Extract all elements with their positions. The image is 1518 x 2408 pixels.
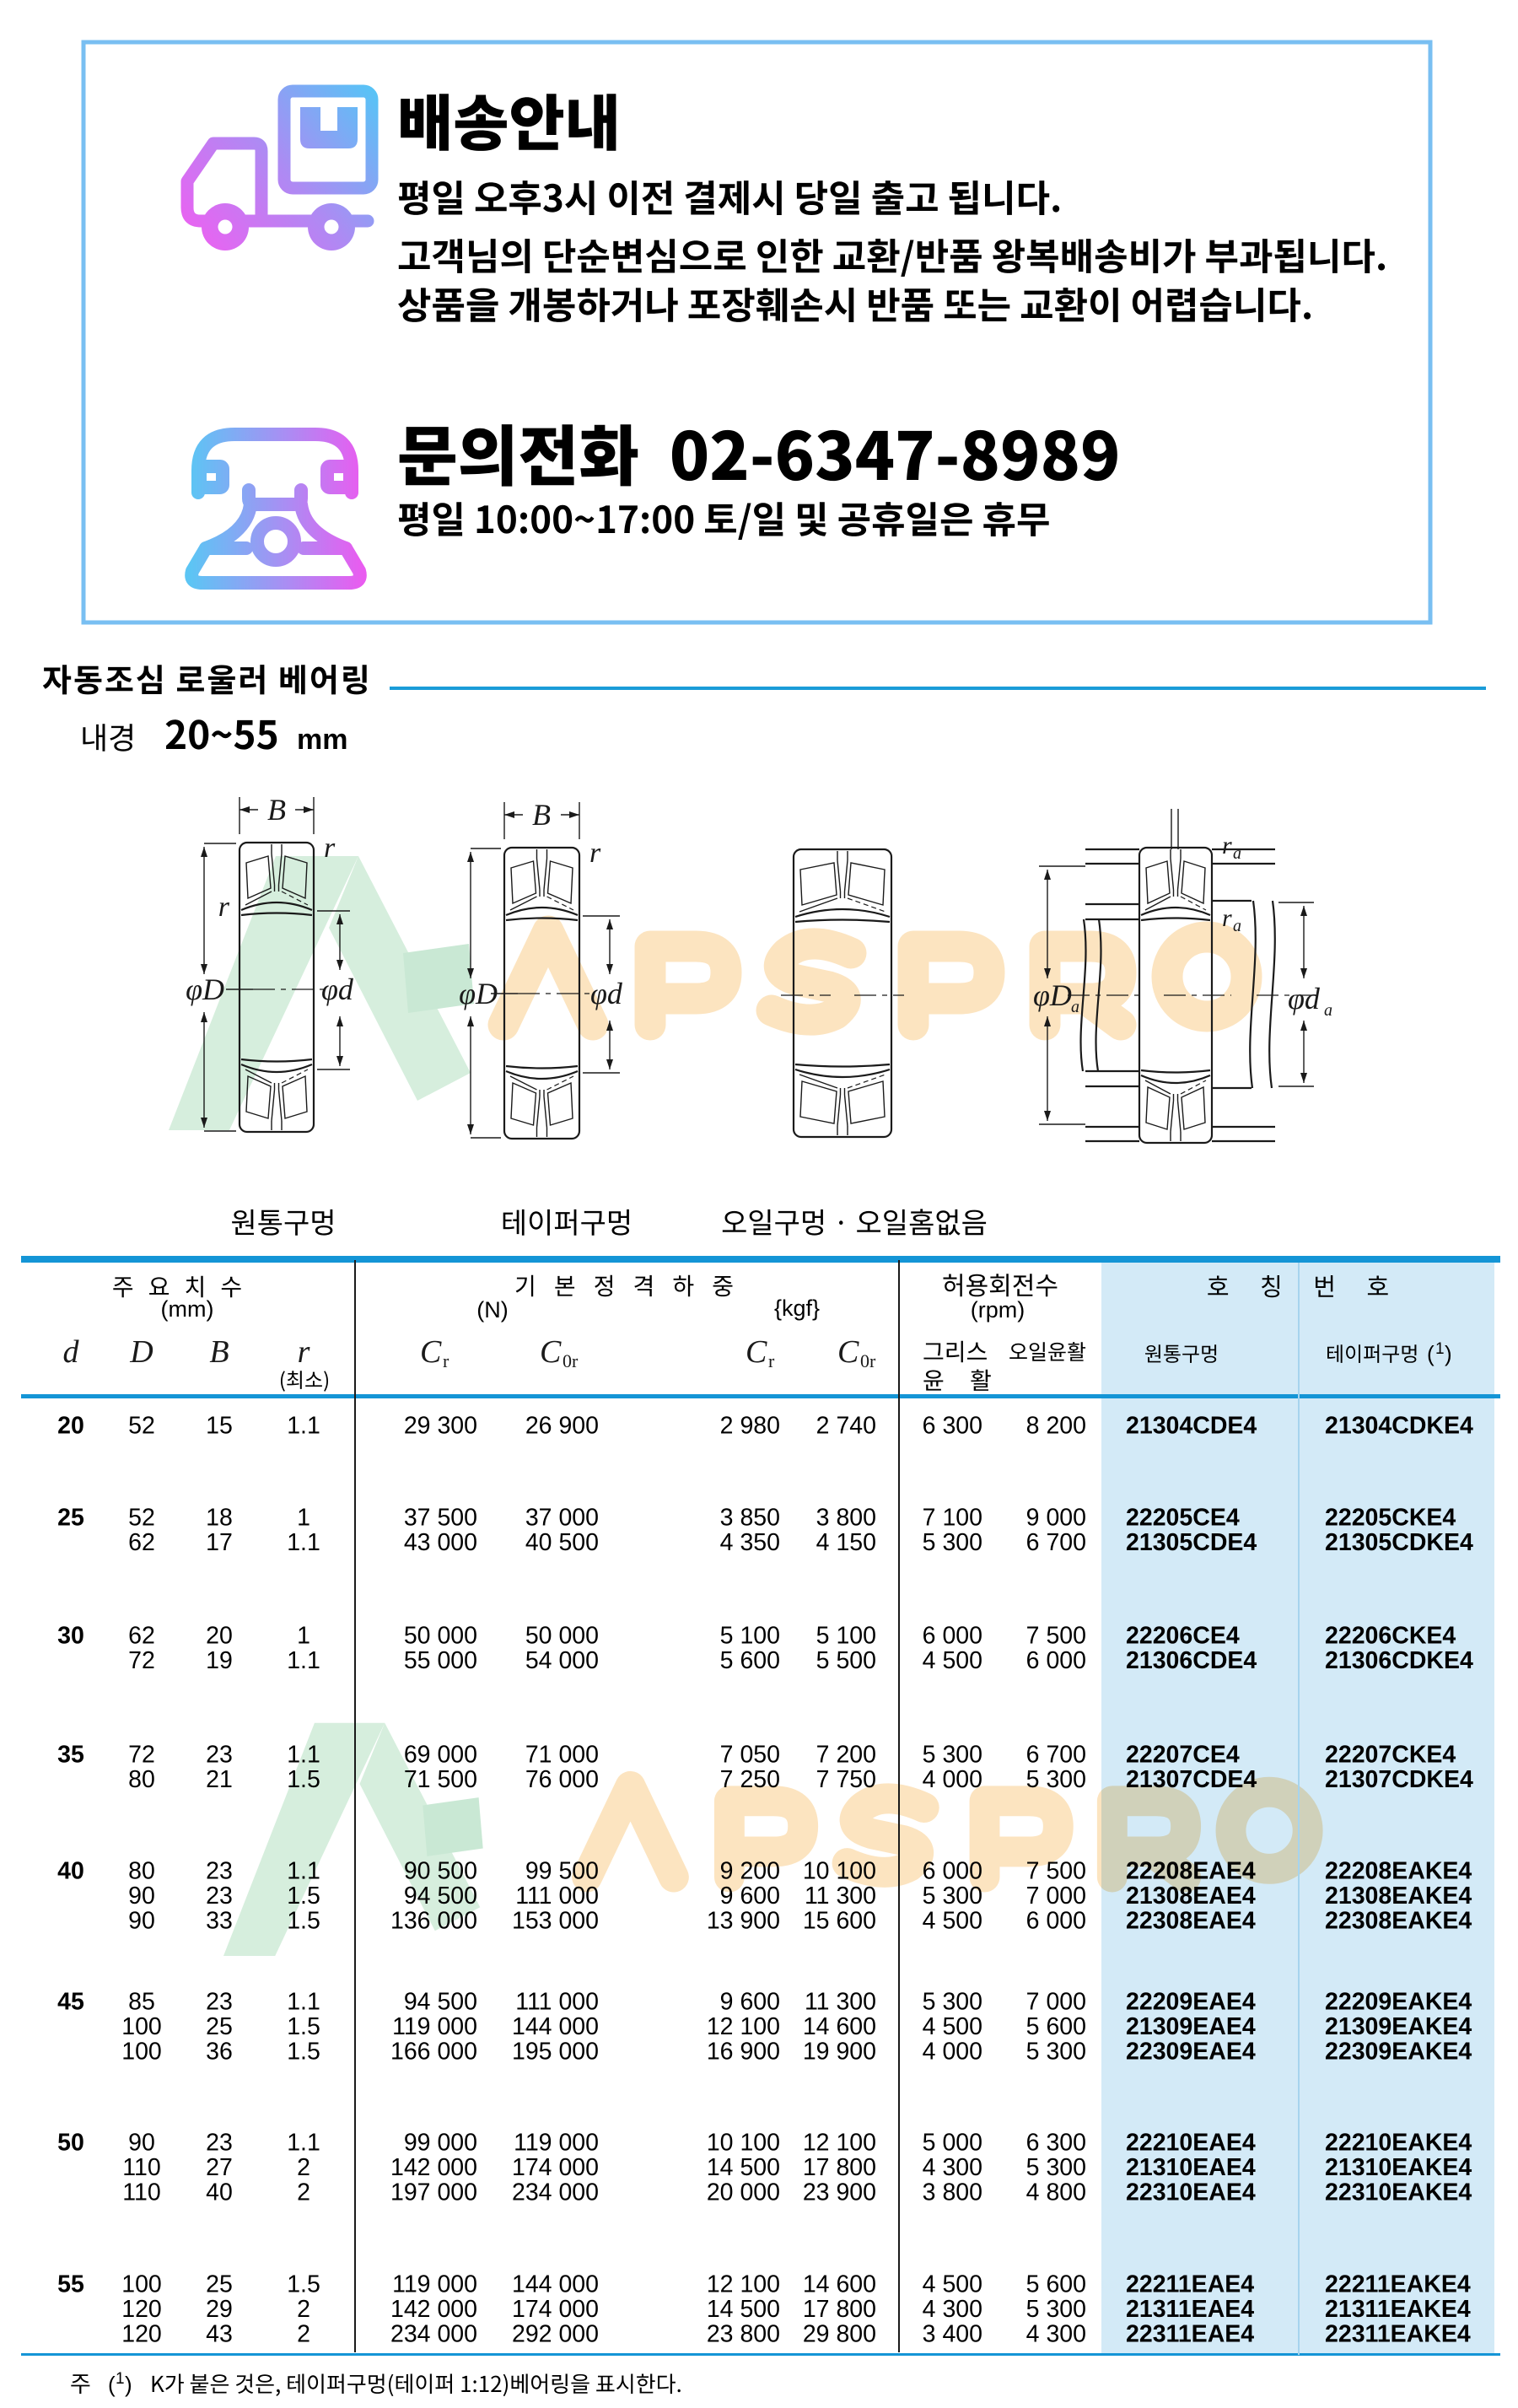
svg-text:2: 2	[297, 2154, 310, 2181]
svg-text:9 200: 9 200	[720, 1858, 780, 1885]
svg-text:25: 25	[206, 2271, 233, 2298]
svg-text:0r: 0r	[860, 1350, 876, 1371]
svg-text:(mm): (mm)	[161, 1296, 214, 1322]
svg-text:22309EAE4: 22309EAE4	[1126, 2038, 1256, 2065]
svg-text:5 300: 5 300	[923, 1742, 982, 1769]
svg-text:54 000: 54 000	[525, 1647, 599, 1674]
svg-text:1: 1	[297, 1505, 310, 1532]
svg-text:1: 1	[116, 2370, 125, 2388]
svg-text:111 000: 111 000	[515, 1989, 599, 2016]
svg-text:(N): (N)	[476, 1297, 508, 1323]
svg-text:6 300: 6 300	[1026, 2130, 1086, 2157]
svg-text:11 300: 11 300	[805, 1883, 876, 1910]
svg-text:52: 52	[128, 1413, 155, 1440]
svg-text:71 500: 71 500	[404, 1766, 477, 1793]
svg-text:22310EAE4: 22310EAE4	[1126, 2179, 1256, 2206]
svg-text:1.1: 1.1	[287, 1989, 320, 2016]
svg-text:174 000: 174 000	[512, 2296, 599, 2323]
svg-text:5 500: 5 500	[816, 1647, 876, 1674]
svg-text:119 000: 119 000	[392, 2013, 477, 2040]
svg-text:3 800: 3 800	[816, 1505, 876, 1532]
svg-text:21309EAKE4: 21309EAKE4	[1325, 2013, 1472, 2040]
svg-text:40: 40	[206, 2179, 233, 2206]
svg-text:14 600: 14 600	[803, 2013, 876, 2040]
svg-text:7 500: 7 500	[1026, 1623, 1086, 1650]
svg-text:a: a	[1233, 917, 1241, 935]
svg-text:35: 35	[57, 1742, 84, 1769]
svg-text:22208EAE4: 22208EAE4	[1126, 1858, 1256, 1885]
svg-text:85: 85	[128, 1989, 155, 2016]
svg-text:234 000: 234 000	[512, 2179, 599, 2206]
svg-text:r: r	[1222, 904, 1232, 932]
svg-text:22205CE4: 22205CE4	[1126, 1505, 1240, 1532]
svg-text:6 000: 6 000	[1026, 1647, 1086, 1674]
svg-text:5 100: 5 100	[720, 1623, 780, 1650]
svg-text:76 000: 76 000	[525, 1766, 599, 1793]
svg-text:50: 50	[57, 2130, 84, 2157]
svg-text:5 300: 5 300	[1026, 2296, 1086, 2323]
svg-text:23 800: 23 800	[707, 2320, 780, 2347]
svg-text:5 300: 5 300	[923, 1883, 982, 1910]
svg-text:14 500: 14 500	[707, 2154, 780, 2181]
svg-text:2: 2	[297, 2320, 310, 2347]
svg-text:22308EAE4: 22308EAE4	[1126, 1907, 1256, 1934]
svg-text:5 600: 5 600	[720, 1647, 780, 1674]
svg-text:C: C	[420, 1334, 442, 1370]
svg-text:55: 55	[57, 2271, 84, 2298]
svg-text:4 350: 4 350	[720, 1529, 780, 1556]
svg-text:21307CDE4: 21307CDE4	[1126, 1766, 1257, 1793]
svg-text:φd: φd	[1288, 982, 1321, 1015]
svg-text:195 000: 195 000	[512, 2038, 599, 2065]
svg-text:3 400: 3 400	[923, 2320, 982, 2347]
svg-text:5 300: 5 300	[923, 1529, 982, 1556]
svg-text:21304CDE4: 21304CDE4	[1126, 1413, 1257, 1440]
svg-text:C: C	[746, 1334, 767, 1370]
svg-text:72: 72	[128, 1647, 155, 1674]
svg-text:22209EAKE4: 22209EAKE4	[1325, 1989, 1472, 2016]
svg-text:21311EAKE4: 21311EAKE4	[1325, 2296, 1471, 2323]
svg-text:1.5: 1.5	[287, 1907, 320, 1934]
svg-text:21305CDE4: 21305CDE4	[1126, 1529, 1257, 1556]
svg-text:25: 25	[57, 1505, 84, 1532]
svg-text:1.5: 1.5	[287, 2013, 320, 2040]
svg-text:9 600: 9 600	[720, 1883, 780, 1910]
svg-text:3 800: 3 800	[923, 2179, 982, 2206]
svg-text:21306CDE4: 21306CDE4	[1126, 1647, 1257, 1674]
svg-text:1: 1	[1435, 1340, 1445, 1358]
svg-text:19 900: 19 900	[803, 2038, 876, 2065]
svg-text:φD: φD	[186, 972, 224, 1006]
svg-text:5 600: 5 600	[1026, 2271, 1086, 2298]
svg-text:40 500: 40 500	[525, 1529, 599, 1556]
svg-text:7 200: 7 200	[816, 1742, 876, 1769]
svg-text:100: 100	[121, 2271, 162, 2298]
svg-text:22207CE4: 22207CE4	[1126, 1742, 1240, 1769]
svg-text:18: 18	[206, 1505, 233, 1532]
svg-text:100: 100	[121, 2013, 162, 2040]
svg-text:φD: φD	[1033, 978, 1072, 1012]
svg-text:119 000: 119 000	[392, 2271, 477, 2298]
svg-text:43: 43	[206, 2320, 233, 2347]
svg-text:292 000: 292 000	[512, 2320, 599, 2347]
svg-text:6 700: 6 700	[1026, 1529, 1086, 1556]
svg-text:4 000: 4 000	[923, 1766, 982, 1793]
svg-text:4 500: 4 500	[923, 2013, 982, 2040]
svg-text:20 000: 20 000	[707, 2179, 780, 2206]
svg-text:1: 1	[297, 1623, 310, 1650]
svg-text:1.5: 1.5	[287, 1883, 320, 1910]
svg-text:22310EAKE4: 22310EAKE4	[1325, 2179, 1472, 2206]
svg-text:16 900: 16 900	[707, 2038, 780, 2065]
svg-text:7 100: 7 100	[923, 1505, 982, 1532]
svg-text:142 000: 142 000	[390, 2154, 477, 2181]
svg-text:{kgf}: {kgf}	[774, 1296, 820, 1321]
svg-text:136 000: 136 000	[390, 1907, 477, 1934]
svg-text:22211EAKE4: 22211EAKE4	[1325, 2271, 1471, 2298]
svg-text:1.5: 1.5	[287, 2271, 320, 2298]
svg-text:37 000: 37 000	[525, 1505, 599, 1532]
svg-text:a: a	[1233, 844, 1241, 863]
svg-text:166 000: 166 000	[390, 2038, 477, 2065]
svg-text:17 800: 17 800	[803, 2154, 876, 2181]
svg-text:7 500: 7 500	[1026, 1858, 1086, 1885]
svg-text:(rpm): (rpm)	[971, 1297, 1025, 1323]
svg-text:4 000: 4 000	[923, 2038, 982, 2065]
svg-text:144 000: 144 000	[512, 2271, 599, 2298]
svg-text:2: 2	[297, 2296, 310, 2323]
svg-text:6 000: 6 000	[923, 1623, 982, 1650]
svg-text:4 300: 4 300	[923, 2296, 982, 2323]
svg-text:1.5: 1.5	[287, 1766, 320, 1793]
svg-text:7 000: 7 000	[1026, 1883, 1086, 1910]
svg-text:12 100: 12 100	[707, 2271, 780, 2298]
svg-text:20: 20	[206, 1623, 233, 1650]
svg-text:8 200: 8 200	[1026, 1413, 1086, 1440]
svg-text:50 000: 50 000	[404, 1623, 477, 1650]
svg-text:99 000: 99 000	[404, 2130, 477, 2157]
svg-text:): )	[1445, 1341, 1452, 1366]
svg-text:φd: φd	[590, 977, 623, 1010]
svg-text:21311EAE4: 21311EAE4	[1126, 2296, 1254, 2323]
svg-text:4 300: 4 300	[923, 2154, 982, 2181]
svg-text:5 000: 5 000	[923, 2130, 982, 2157]
svg-text:21310EAKE4: 21310EAKE4	[1325, 2154, 1472, 2181]
svg-text:a: a	[1324, 1001, 1332, 1020]
svg-text:φd: φd	[321, 972, 354, 1006]
svg-text:25: 25	[206, 2013, 233, 2040]
svg-text:22210EAE4: 22210EAE4	[1126, 2130, 1256, 2157]
svg-text:100: 100	[121, 2038, 162, 2065]
svg-text:1.1: 1.1	[287, 1742, 320, 1769]
svg-text:21308EAKE4: 21308EAKE4	[1325, 1883, 1472, 1910]
svg-text:1.1: 1.1	[287, 1647, 320, 1674]
svg-text:12 100: 12 100	[707, 2013, 780, 2040]
svg-text:r: r	[768, 1350, 775, 1371]
svg-text:B: B	[209, 1334, 229, 1370]
svg-text:30: 30	[57, 1623, 84, 1650]
svg-text:94 500: 94 500	[404, 1883, 477, 1910]
svg-text:120: 120	[121, 2296, 162, 2323]
svg-text:1.1: 1.1	[287, 2130, 320, 2157]
svg-text:153 000: 153 000	[512, 1907, 599, 1934]
svg-text:19: 19	[206, 1647, 233, 1674]
svg-text:80: 80	[128, 1858, 155, 1885]
svg-text:22308EAKE4: 22308EAKE4	[1325, 1907, 1472, 1934]
svg-text:4 500: 4 500	[923, 1647, 982, 1674]
svg-text:2 980: 2 980	[720, 1413, 780, 1440]
svg-text:mm: mm	[297, 724, 347, 756]
svg-text:29 300: 29 300	[404, 1413, 477, 1440]
svg-text:62: 62	[128, 1529, 155, 1556]
svg-text:69 000: 69 000	[404, 1742, 477, 1769]
svg-text:23: 23	[206, 1742, 233, 1769]
svg-text:90: 90	[128, 2130, 155, 2157]
svg-text:22311EAE4: 22311EAE4	[1126, 2320, 1254, 2347]
svg-text:43 000: 43 000	[404, 1529, 477, 1556]
svg-text:9 600: 9 600	[720, 1989, 780, 2016]
svg-text:r: r	[218, 892, 230, 923]
svg-text:90 500: 90 500	[404, 1858, 477, 1885]
svg-text:(: (	[108, 2372, 116, 2397]
svg-text:1.1: 1.1	[287, 1858, 320, 1885]
svg-text:22208EAKE4: 22208EAKE4	[1325, 1858, 1472, 1885]
svg-text:197 000: 197 000	[390, 2179, 477, 2206]
svg-text:22206CE4: 22206CE4	[1126, 1623, 1240, 1650]
svg-text:23: 23	[206, 1989, 233, 2016]
svg-text:5 100: 5 100	[816, 1623, 876, 1650]
svg-text:120: 120	[121, 2320, 162, 2347]
svg-text:21306CDKE4: 21306CDKE4	[1325, 1647, 1473, 1674]
svg-text:22211EAE4: 22211EAE4	[1126, 2271, 1254, 2298]
svg-text:r: r	[443, 1350, 449, 1371]
svg-text:2 740: 2 740	[816, 1413, 876, 1440]
svg-text:21307CDKE4: 21307CDKE4	[1325, 1766, 1473, 1793]
svg-text:21309EAE4: 21309EAE4	[1126, 2013, 1256, 2040]
svg-text:9 000: 9 000	[1026, 1505, 1086, 1532]
svg-text:4 300: 4 300	[1026, 2320, 1086, 2347]
svg-text:174 000: 174 000	[512, 2154, 599, 2181]
svg-text:10 100: 10 100	[707, 2130, 780, 2157]
svg-text:1.1: 1.1	[287, 1529, 320, 1556]
svg-text:71 000: 71 000	[525, 1742, 599, 1769]
svg-text:1.5: 1.5	[287, 2038, 320, 2065]
svg-text:15: 15	[206, 1413, 233, 1440]
svg-text:22205CKE4: 22205CKE4	[1325, 1505, 1456, 1532]
svg-text:36: 36	[206, 2038, 233, 2065]
svg-text:4 500: 4 500	[923, 1907, 982, 1934]
svg-text:17 800: 17 800	[803, 2296, 876, 2323]
svg-text:7 000: 7 000	[1026, 1989, 1086, 2016]
svg-text:1.1: 1.1	[287, 1413, 320, 1440]
svg-text:5 300: 5 300	[1026, 2038, 1086, 2065]
svg-text:r: r	[589, 838, 601, 869]
svg-text:2: 2	[297, 2179, 310, 2206]
svg-text:11 300: 11 300	[805, 1989, 876, 2016]
svg-text:5 300: 5 300	[923, 1989, 982, 2016]
svg-text:55 000: 55 000	[404, 1647, 477, 1674]
svg-text:26 900: 26 900	[525, 1413, 599, 1440]
svg-text:5 300: 5 300	[1026, 1766, 1086, 1793]
svg-text:62: 62	[128, 1623, 155, 1650]
svg-text:7 750: 7 750	[816, 1766, 876, 1793]
svg-text:7 050: 7 050	[720, 1742, 780, 1769]
svg-text:23: 23	[206, 2130, 233, 2157]
svg-text:6 000: 6 000	[1026, 1907, 1086, 1934]
svg-text:13 900: 13 900	[707, 1907, 780, 1934]
svg-text:): )	[125, 2372, 132, 2397]
svg-text:33: 33	[206, 1907, 233, 1934]
svg-text:14 500: 14 500	[707, 2296, 780, 2323]
svg-text:C: C	[540, 1334, 562, 1370]
svg-text:B: B	[267, 793, 286, 827]
svg-text:94 500: 94 500	[404, 1989, 477, 2016]
svg-text:0r: 0r	[563, 1350, 579, 1371]
svg-text:22311EAKE4: 22311EAKE4	[1325, 2320, 1471, 2347]
svg-text:21305CDKE4: 21305CDKE4	[1325, 1529, 1473, 1556]
svg-text:22309EAKE4: 22309EAKE4	[1325, 2038, 1472, 2065]
svg-text:119 000: 119 000	[514, 2130, 599, 2157]
svg-text:15 600: 15 600	[803, 1907, 876, 1934]
svg-text:29: 29	[206, 2296, 233, 2323]
svg-text:23: 23	[206, 1858, 233, 1885]
svg-text:D: D	[129, 1334, 153, 1370]
svg-text:d: d	[63, 1334, 80, 1370]
svg-text:21304CDKE4: 21304CDKE4	[1325, 1413, 1473, 1440]
svg-text:B: B	[532, 798, 551, 832]
svg-text:45: 45	[57, 1989, 84, 2016]
svg-text:22210EAKE4: 22210EAKE4	[1325, 2130, 1472, 2157]
svg-text:20: 20	[57, 1413, 84, 1440]
svg-text:111 000: 111 000	[515, 1883, 599, 1910]
svg-text:234 000: 234 000	[390, 2320, 477, 2347]
svg-text:22206CKE4: 22206CKE4	[1325, 1623, 1456, 1650]
svg-text:90: 90	[128, 1883, 155, 1910]
svg-text:110: 110	[122, 2179, 160, 2206]
svg-text:72: 72	[128, 1742, 155, 1769]
svg-text:90: 90	[128, 1907, 155, 1934]
svg-text:a: a	[1071, 998, 1079, 1016]
svg-text:40: 40	[57, 1858, 84, 1885]
svg-text:21310EAE4: 21310EAE4	[1126, 2154, 1256, 2181]
svg-text:r: r	[1222, 832, 1232, 859]
svg-text:φD: φD	[459, 977, 498, 1010]
svg-text:21308EAE4: 21308EAE4	[1126, 1883, 1256, 1910]
svg-text:22209EAE4: 22209EAE4	[1126, 1989, 1256, 2016]
svg-text:6 000: 6 000	[923, 1858, 982, 1885]
svg-text:14 600: 14 600	[803, 2271, 876, 2298]
svg-text:23: 23	[206, 1883, 233, 1910]
svg-text:4 500: 4 500	[923, 2271, 982, 2298]
svg-text:3 850: 3 850	[720, 1505, 780, 1532]
svg-text:27: 27	[206, 2154, 233, 2181]
svg-text:4 150: 4 150	[816, 1529, 876, 1556]
svg-text:6 300: 6 300	[923, 1413, 982, 1440]
svg-text:52: 52	[128, 1505, 155, 1532]
svg-text:5 300: 5 300	[1026, 2154, 1086, 2181]
svg-text:142 000: 142 000	[390, 2296, 477, 2323]
svg-text:7 250: 7 250	[720, 1766, 780, 1793]
svg-text:80: 80	[128, 1766, 155, 1793]
svg-text:12 100: 12 100	[803, 2130, 876, 2157]
svg-text:6 700: 6 700	[1026, 1742, 1086, 1769]
svg-text:r: r	[324, 832, 336, 864]
svg-text:50 000: 50 000	[525, 1623, 599, 1650]
svg-text:(: (	[1427, 1341, 1435, 1366]
svg-text:5 600: 5 600	[1026, 2013, 1086, 2040]
svg-text:21: 21	[206, 1766, 233, 1793]
svg-text:4 800: 4 800	[1026, 2179, 1086, 2206]
svg-text:22207CKE4: 22207CKE4	[1325, 1742, 1456, 1769]
svg-text:C: C	[837, 1334, 859, 1370]
svg-text:37 500: 37 500	[404, 1505, 477, 1532]
svg-text:17: 17	[206, 1529, 233, 1556]
svg-text:23 900: 23 900	[803, 2179, 876, 2206]
svg-text:110: 110	[122, 2154, 160, 2181]
svg-text:10 100: 10 100	[803, 1858, 876, 1885]
svg-text:29 800: 29 800	[803, 2320, 876, 2347]
svg-text:144 000: 144 000	[512, 2013, 599, 2040]
svg-text:99 500: 99 500	[525, 1858, 599, 1885]
svg-text:r: r	[298, 1334, 310, 1370]
